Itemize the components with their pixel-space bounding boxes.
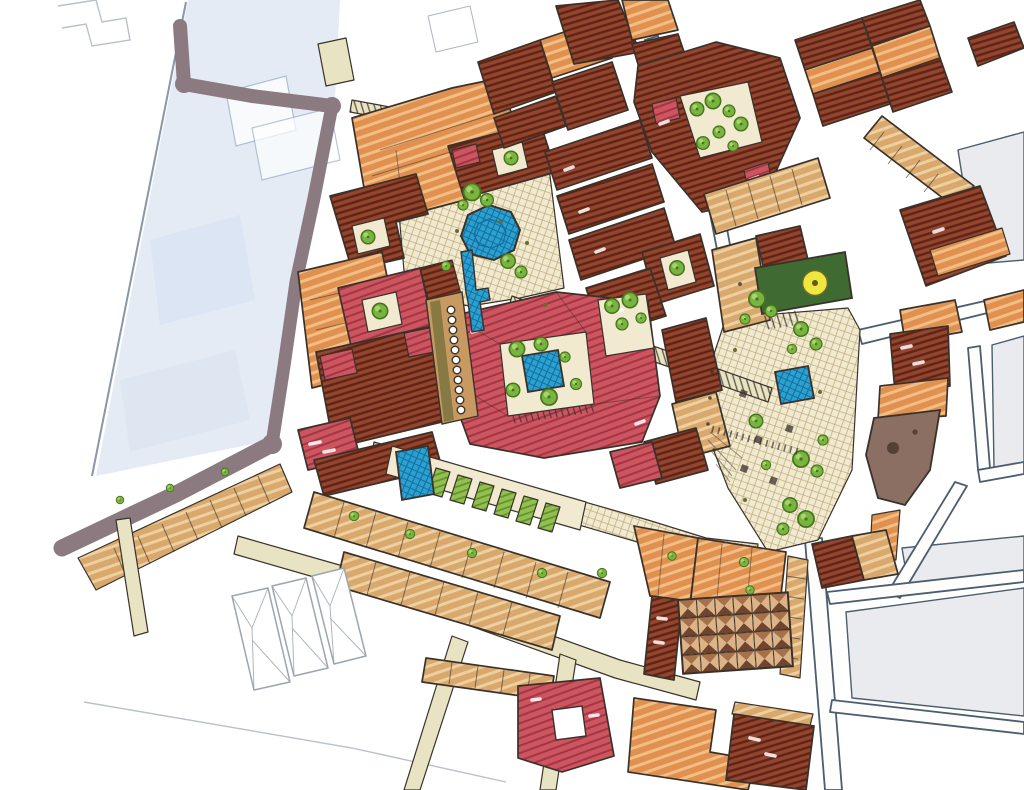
tree [670, 261, 684, 275]
tree [697, 137, 710, 150]
garden-pool [396, 446, 434, 500]
maroon-bar [644, 596, 682, 680]
tree [713, 126, 725, 138]
roof-dot [912, 429, 917, 434]
road-junction [262, 434, 282, 454]
curved-taupe-building [866, 410, 940, 505]
tree [705, 93, 720, 108]
tree [723, 105, 735, 117]
tree [622, 292, 637, 307]
tree [746, 586, 755, 595]
market-hall-pyramid-grid [678, 592, 793, 673]
gray-parcel [992, 336, 1024, 468]
tree [405, 529, 414, 538]
tree [541, 389, 557, 405]
tree [690, 102, 704, 116]
tree [761, 460, 770, 469]
oculus-dot [812, 280, 818, 286]
tree [777, 523, 789, 535]
tree [783, 498, 797, 512]
tree [441, 261, 450, 270]
ghost-outline [428, 6, 478, 52]
tree [616, 318, 628, 330]
orange-roof-block [634, 526, 698, 604]
tree [597, 568, 606, 577]
tree [458, 200, 468, 210]
tree [728, 141, 738, 151]
orange-roof-block [984, 290, 1024, 330]
tree [361, 230, 375, 244]
tree [798, 511, 814, 527]
tree [467, 548, 476, 557]
courtyard-pool [522, 350, 564, 392]
tree [810, 338, 822, 350]
tree [537, 568, 546, 577]
east-plaza-pool [775, 366, 814, 404]
tree [668, 552, 677, 561]
tree [605, 299, 619, 313]
orange-roof-block [622, 0, 678, 40]
gray-parcel [846, 588, 1024, 716]
tree [509, 341, 524, 356]
tree [166, 484, 174, 492]
tree [116, 496, 124, 504]
tree [749, 414, 763, 428]
tree [793, 451, 809, 467]
east-tree-plaza [706, 308, 860, 552]
road-junction [323, 97, 341, 115]
masterplan-sketch: Hand-drawn urban masterplan sketch, plan… [0, 0, 1024, 790]
roof-dot [887, 442, 899, 454]
maroon-bar [968, 22, 1024, 66]
tree [818, 435, 828, 445]
tree [734, 117, 748, 131]
maroon-block [726, 714, 814, 790]
tree [372, 303, 387, 318]
tree [349, 511, 358, 520]
tree [811, 465, 823, 477]
tree [739, 557, 748, 566]
corner-pencil-outline [58, 0, 130, 46]
tree [506, 383, 520, 397]
tree [740, 314, 750, 324]
tree [560, 352, 570, 362]
road-junction [175, 75, 193, 93]
tree [221, 468, 229, 476]
tree [636, 313, 646, 323]
tree [787, 344, 796, 353]
tree [504, 151, 518, 165]
tree [765, 305, 777, 317]
street-outlined [968, 346, 990, 470]
tree [794, 322, 808, 336]
tree [570, 378, 581, 389]
red-roof-block [610, 442, 662, 488]
tree [501, 254, 515, 268]
courtyard [552, 706, 586, 740]
tree [749, 291, 765, 307]
ghost-hip-roof-buildings [232, 568, 366, 690]
tree [534, 337, 548, 351]
tree [515, 266, 527, 278]
maroon-block [662, 318, 722, 402]
tree [464, 184, 481, 201]
tree [481, 194, 494, 207]
roof-dot [738, 282, 742, 286]
